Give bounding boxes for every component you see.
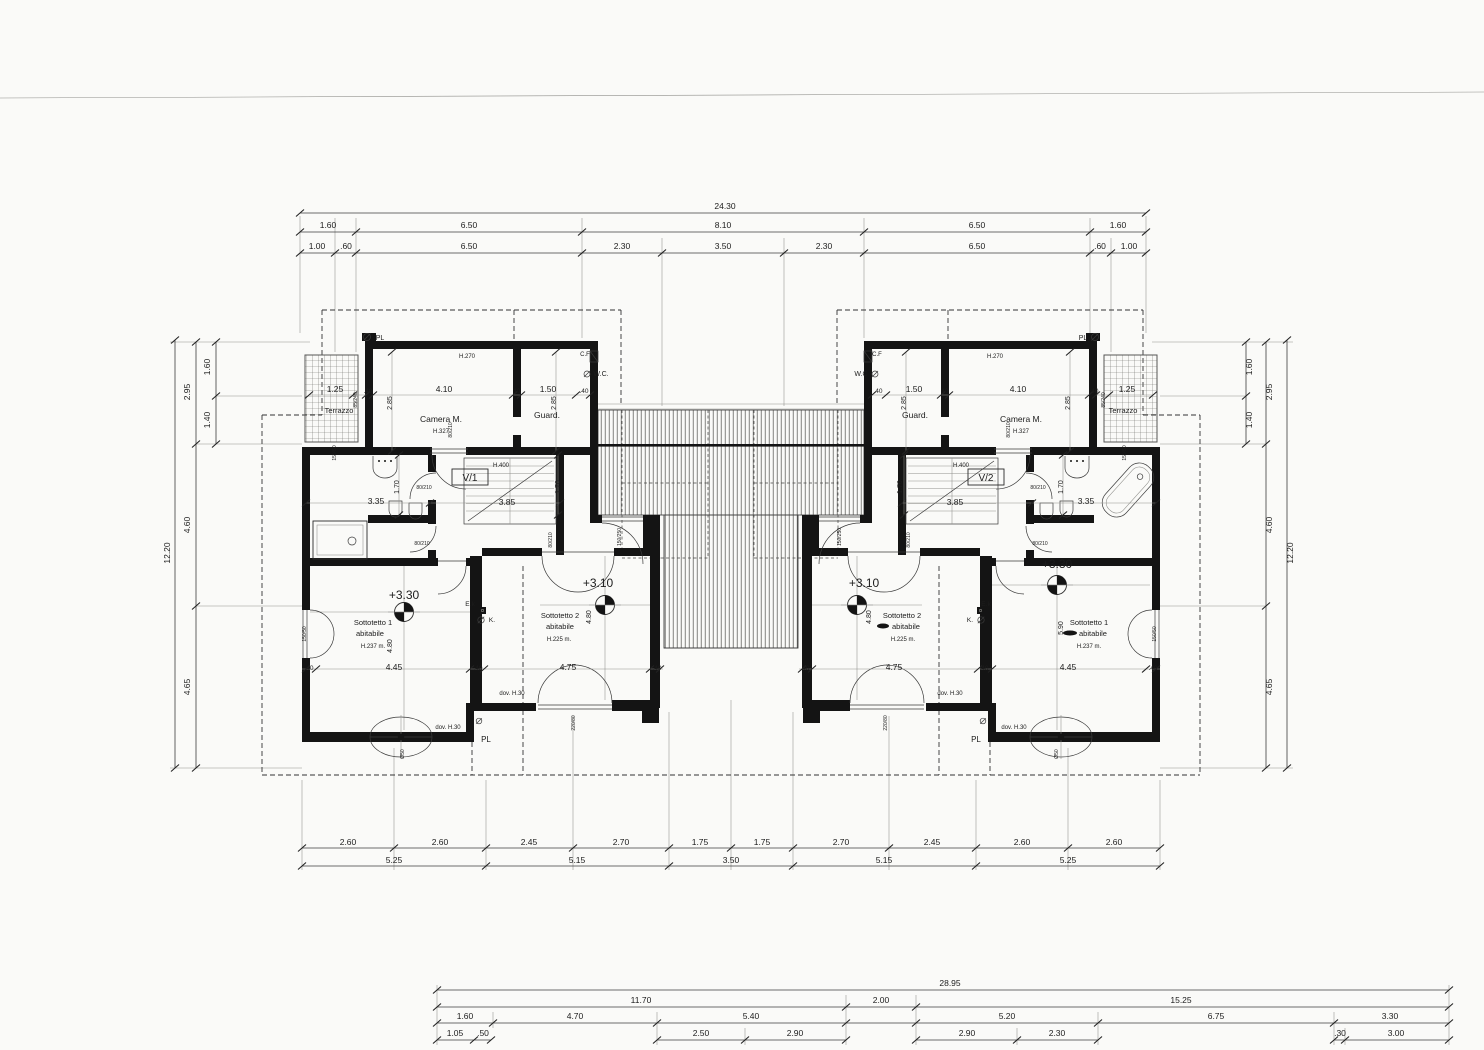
dim-total-site: 28.95: [939, 978, 961, 988]
tag: 80/210: [414, 541, 430, 547]
note: dov. H.30: [499, 691, 525, 697]
dim: 1.25: [327, 384, 344, 394]
height-note: H.237 m.: [361, 644, 386, 650]
tag: 150/50: [1152, 626, 1158, 642]
tag: 85/240: [1101, 392, 1107, 408]
dim: 2.85: [901, 396, 908, 410]
dim: 2.85: [1065, 396, 1072, 410]
tag: 220/80: [571, 715, 577, 731]
dim: 1.25: [1119, 384, 1136, 394]
drain-icon: [476, 718, 482, 724]
dim: 1.75: [692, 837, 709, 847]
room-label: abitabile: [356, 629, 384, 638]
dim: 1.00: [1121, 241, 1138, 251]
note: dov. H.30: [1001, 725, 1027, 731]
dim: 2.70: [613, 837, 630, 847]
dim: .40: [363, 388, 372, 395]
dim: 3.35: [1078, 496, 1095, 506]
tag: C.F: [580, 352, 590, 358]
dim: 4.45: [1060, 662, 1077, 672]
height-note: H.400: [493, 463, 510, 469]
level-marker-icon: [589, 596, 621, 615]
dim: .40: [979, 665, 988, 672]
tag: 80/210: [1032, 541, 1048, 547]
tag: 150/250: [617, 528, 623, 546]
tag: K.: [489, 617, 495, 624]
dim: 1.40: [202, 411, 212, 428]
level-label: +3.30: [389, 588, 420, 602]
roof-light-oval-icon: [1030, 715, 1092, 759]
dim: 2.95: [1264, 383, 1274, 400]
tag: 220/80: [883, 715, 889, 731]
dim: .60: [340, 241, 352, 251]
dim: .40: [304, 665, 313, 672]
dim: 2.60: [432, 837, 449, 847]
tag: 80/210: [1030, 485, 1046, 491]
dim: 2.30: [1049, 1028, 1066, 1038]
dim: 5.15: [569, 855, 586, 865]
floor-plan-drawing: 24.301.606.508.106.501.601.00.606.502.30…: [0, 0, 1484, 1050]
dim: 4.80: [387, 639, 394, 653]
dim-total-right: 12.20: [1285, 542, 1295, 564]
room-label: abitabile: [546, 622, 574, 631]
dim: 4.10: [436, 384, 453, 394]
dim: 2.95: [182, 383, 192, 400]
dim: 5.25: [1060, 855, 1077, 865]
dim: 3.30: [1382, 1011, 1399, 1021]
dim: 1.70: [897, 480, 904, 494]
dim: 4.60: [182, 516, 192, 533]
dim: 2.45: [521, 837, 538, 847]
dim: 1.00: [309, 241, 326, 251]
room-label: Terrazzo: [325, 406, 354, 415]
room-label: Terrazzo: [1109, 406, 1138, 415]
dim: 1.60: [1244, 358, 1254, 375]
dim: 1.60: [320, 220, 337, 230]
tag: E.k: [981, 601, 991, 608]
note: dov. H.30: [937, 691, 963, 697]
level-marker-icon: [388, 603, 420, 622]
dim: .50: [477, 1028, 489, 1038]
dim: 15.25: [1170, 995, 1192, 1005]
dim: 5.90: [1058, 621, 1065, 635]
dim: 1.40: [1244, 411, 1254, 428]
shower-tray-icon: [313, 521, 367, 559]
tag: 150/50: [1122, 445, 1128, 461]
dim: 5.40: [743, 1011, 760, 1021]
tag: 150/50: [332, 445, 338, 461]
height-note: H.225 m.: [547, 637, 572, 643]
tag: 80/210: [448, 422, 454, 438]
dim: 4.65: [182, 678, 192, 695]
tag: 85/240: [353, 392, 359, 408]
room-label: W.C: [854, 371, 867, 378]
room-label: Sottotetto 1: [354, 618, 392, 627]
dim: 8.10: [715, 220, 732, 230]
dim: .60: [1094, 241, 1106, 251]
note: dov. H.30: [435, 725, 461, 731]
dim: 4.65: [1264, 678, 1274, 695]
dim: 4.75: [560, 662, 577, 672]
dim: 10: [514, 389, 521, 395]
dim: 2.60: [1014, 837, 1031, 847]
wc-icon: [1060, 501, 1073, 517]
dim: 1.70: [1058, 480, 1065, 494]
room-label: Sottotetto 1: [1070, 618, 1108, 627]
room-label: abitabile: [1079, 629, 1107, 638]
wc-vent-icon: [872, 371, 878, 377]
dim: 5.25: [386, 855, 403, 865]
dim: 2.30: [816, 241, 833, 251]
dim: 1.75: [754, 837, 771, 847]
dim: 3.85: [499, 497, 516, 507]
tag: K.: [967, 617, 973, 624]
drain-icon: [980, 718, 986, 724]
tag: Ø50: [400, 749, 406, 759]
tag: E.k: [465, 601, 475, 608]
dim: 5.20: [999, 1011, 1016, 1021]
dim: 2.45: [924, 837, 941, 847]
dim: 2.50: [693, 1028, 710, 1038]
dim: 6.50: [461, 220, 478, 230]
tag: 80/210: [548, 532, 554, 548]
dim: 4.10: [1010, 384, 1027, 394]
dim: 1.05: [447, 1028, 464, 1038]
floor-plan-sheet: 24.301.606.508.106.501.601.00.606.502.30…: [0, 0, 1484, 1050]
pl-label: PL: [376, 335, 385, 342]
ink-blob: [877, 624, 889, 629]
dim: .40: [473, 665, 482, 672]
room-label: abitabile: [892, 622, 920, 631]
dim: 4.75: [886, 662, 903, 672]
dim: 4.60: [1264, 516, 1274, 533]
tag: Ø50: [1054, 749, 1060, 759]
staircase: [464, 458, 556, 524]
dim: 5.15: [876, 855, 893, 865]
wc-vent-icon: [584, 371, 590, 377]
room-label: Sottotetto 2: [883, 611, 921, 620]
height-note: H.400: [953, 463, 970, 469]
level-label: +3.30: [1042, 557, 1073, 571]
room-label: Guard.: [902, 410, 928, 420]
height-note: H.237 m.: [1077, 644, 1102, 650]
dim: 3.00: [1388, 1028, 1405, 1038]
dim: 1.70: [394, 480, 401, 494]
dim: 2.60: [1106, 837, 1123, 847]
washbasin-icon: [1065, 456, 1089, 478]
pl-label: PL: [481, 735, 491, 744]
dim: .40: [1089, 388, 1098, 395]
villa-id: V/1: [462, 473, 477, 484]
dim: .40: [579, 388, 588, 395]
dim: 1.60: [202, 358, 212, 375]
dim: 4.80: [586, 610, 593, 624]
ink-blob: [1063, 631, 1077, 636]
bathtub-icon: [1097, 458, 1159, 523]
dim: .30: [1334, 1028, 1346, 1038]
dim: 2.30: [614, 241, 631, 251]
dim: 6.50: [969, 220, 986, 230]
dim: 2.90: [787, 1028, 804, 1038]
dim: 3.35: [368, 496, 385, 506]
dim: .40: [652, 665, 661, 672]
tag: 150/250: [837, 528, 843, 546]
dim: 1.70: [555, 480, 562, 494]
dim: .40: [1148, 665, 1157, 672]
villa-id: V/2: [978, 473, 993, 484]
room-label: W.C.: [593, 371, 608, 378]
dim: 6.50: [461, 241, 478, 251]
dim: 2.70: [833, 837, 850, 847]
level-label: +3.10: [583, 576, 614, 590]
dim: 2.00: [873, 995, 890, 1005]
washbasin-icon: [373, 456, 397, 478]
dim: 2.60: [340, 837, 357, 847]
level-label: +3.10: [849, 576, 880, 590]
dim-total-left: 12.20: [162, 542, 172, 564]
room-label: Camera M.: [420, 414, 462, 424]
dim: 10: [942, 389, 949, 395]
height-note: H.270: [987, 354, 1004, 360]
tag: 80/210: [906, 532, 912, 548]
dim: .40: [800, 665, 809, 672]
tag: 80/210: [1006, 422, 1012, 438]
dim: 4.80: [866, 610, 873, 624]
room-label: Sottotetto 2: [541, 611, 579, 620]
dim: 4.70: [567, 1011, 584, 1021]
dim: 11.70: [631, 995, 652, 1005]
room-label: Guard.: [534, 410, 560, 420]
dim: 2.90: [959, 1028, 976, 1038]
dim: 1.60: [457, 1011, 474, 1021]
dim: 4.45: [386, 662, 403, 672]
dim: 3.50: [715, 241, 732, 251]
dim: 6.75: [1208, 1011, 1225, 1021]
dim: .40: [873, 388, 882, 395]
height-note: H.327: [1013, 429, 1030, 435]
dim: 3.85: [947, 497, 964, 507]
pl-label: PL: [971, 735, 981, 744]
level-marker-icon: [1041, 576, 1073, 595]
tag: 150/50: [302, 626, 308, 642]
dim: 2.85: [387, 396, 394, 410]
height-note: H.270: [459, 354, 476, 360]
tag: 80/210: [416, 485, 432, 491]
dim: 3.50: [723, 855, 740, 865]
pl-label: PL: [1079, 335, 1088, 342]
dim: 6.50: [969, 241, 986, 251]
tag: C.F: [872, 352, 882, 358]
dim: 1.50: [540, 384, 557, 394]
dim-total-top: 24.30: [714, 201, 736, 211]
dim: 2.85: [551, 396, 558, 410]
dim: 1.60: [1110, 220, 1127, 230]
dim: 1.50: [906, 384, 923, 394]
height-note: H.225 m.: [891, 637, 916, 643]
